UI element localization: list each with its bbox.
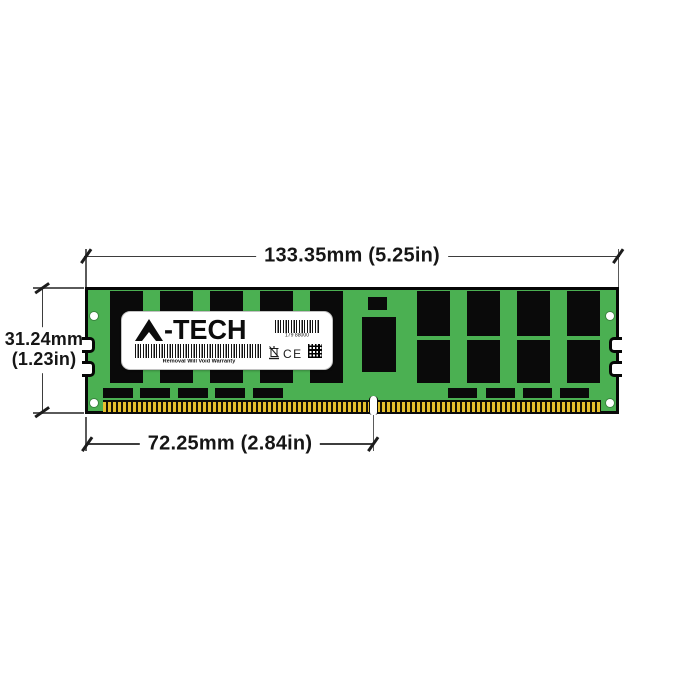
weee-bin-icon [268, 345, 280, 365]
ce-mark-icon: CE [283, 347, 303, 361]
warranty-text: Removal Will Void Warranty [140, 359, 258, 365]
dram-chip [567, 340, 600, 383]
dram-chip [517, 291, 550, 336]
dram-chip [417, 340, 450, 383]
mounting-hole [90, 312, 98, 320]
dimension-label-height-in: (1.23in) [5, 350, 83, 370]
a-tech-triangle-a-icon [135, 319, 163, 341]
small-ic-chip [253, 388, 283, 398]
dimension-label-width: 133.35mm (5.25in) [256, 244, 448, 269]
dimension-label-height-mm: 31.24mm [5, 330, 83, 350]
gold-pins-left [103, 402, 369, 412]
dram-chip [417, 291, 450, 336]
side-notch [82, 361, 95, 377]
dram-chip [567, 291, 600, 336]
brand-wordmark: -TECH [164, 319, 247, 341]
side-notch [82, 337, 95, 353]
dimension-label-height: 31.24mm (1.23in) [0, 327, 88, 373]
small-ic-chip [140, 388, 170, 398]
side-notch [609, 337, 622, 353]
qr-code-icon [308, 344, 322, 358]
small-ic-chip [448, 388, 477, 398]
mounting-hole [606, 399, 614, 407]
small-ic-chip [103, 388, 133, 398]
small-ic-chip [215, 388, 245, 398]
main-barcode [135, 344, 263, 358]
a-tech-brand-logo: -TECH [135, 319, 247, 341]
dram-chip [467, 340, 500, 383]
dram-chip [467, 291, 500, 336]
register-buffer-chip [362, 317, 396, 372]
product-label: -TECH 179 88000 Removal Will Void Warran… [121, 311, 333, 370]
serial-barcode [275, 320, 319, 333]
serial-number: 179 88000 [275, 333, 319, 338]
mounting-hole [90, 399, 98, 407]
dimension-label-key-offset: 72.25mm (2.84in) [140, 431, 320, 456]
small-ic-chip [486, 388, 515, 398]
connector-key-notch [369, 396, 379, 415]
gold-pins-right [377, 402, 601, 412]
small-ic-chip [178, 388, 208, 398]
small-ic-chip [560, 388, 589, 398]
product-dimension-diagram: 133.35mm (5.25in) 31.24mm (1.23in) 72.25… [0, 0, 700, 700]
spd-chip [368, 297, 387, 310]
mounting-hole [606, 312, 614, 320]
dram-chip [517, 340, 550, 383]
small-ic-chip [523, 388, 552, 398]
side-notch [609, 361, 622, 377]
